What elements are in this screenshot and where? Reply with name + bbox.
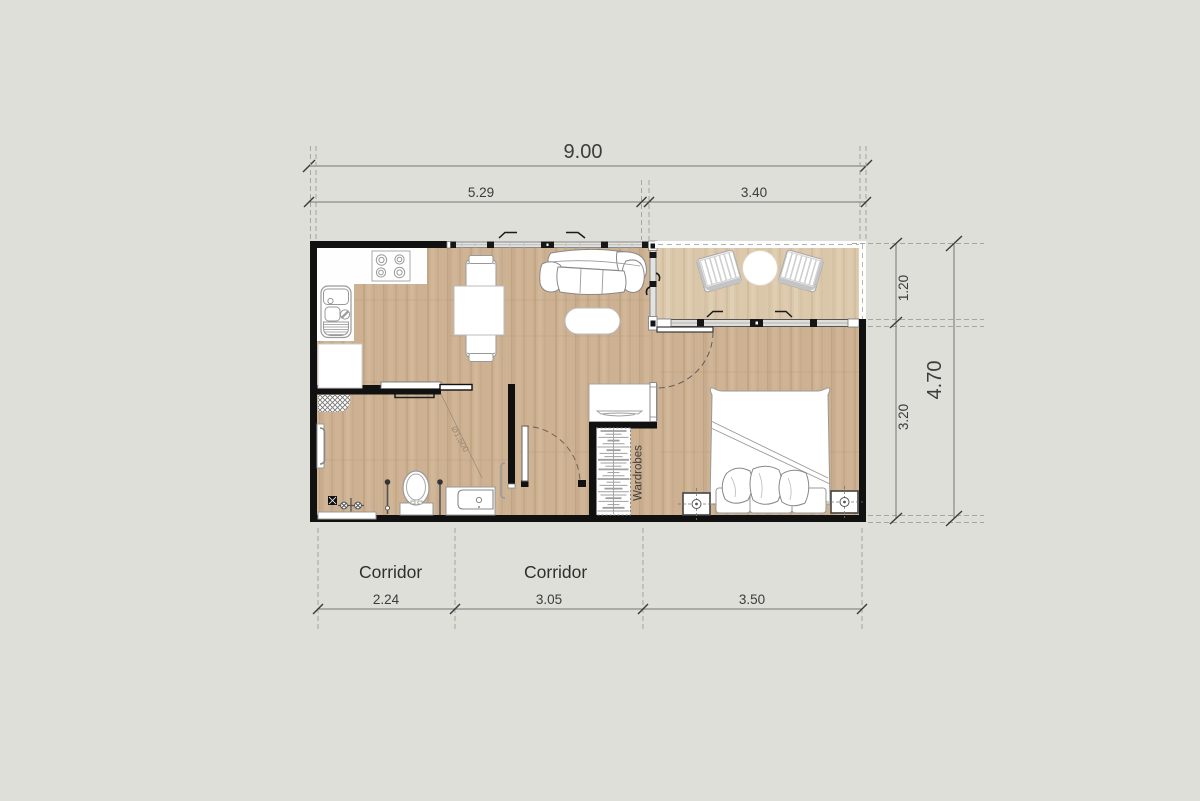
svg-text:4.70: 4.70	[924, 361, 946, 400]
svg-text:2.24: 2.24	[373, 592, 400, 607]
svg-text:3.05: 3.05	[536, 592, 562, 607]
svg-text:3.20: 3.20	[896, 404, 911, 430]
svg-text:5.29: 5.29	[468, 185, 494, 200]
svg-text:1.20: 1.20	[896, 275, 911, 301]
svg-text:Wardrobes: Wardrobes	[633, 445, 645, 501]
svg-text:Corridor: Corridor	[524, 562, 587, 582]
svg-text:3.50: 3.50	[739, 592, 765, 607]
svg-text:3.40: 3.40	[741, 185, 767, 200]
svg-text:Corridor: Corridor	[359, 562, 422, 582]
svg-text:9.00: 9.00	[564, 141, 603, 163]
